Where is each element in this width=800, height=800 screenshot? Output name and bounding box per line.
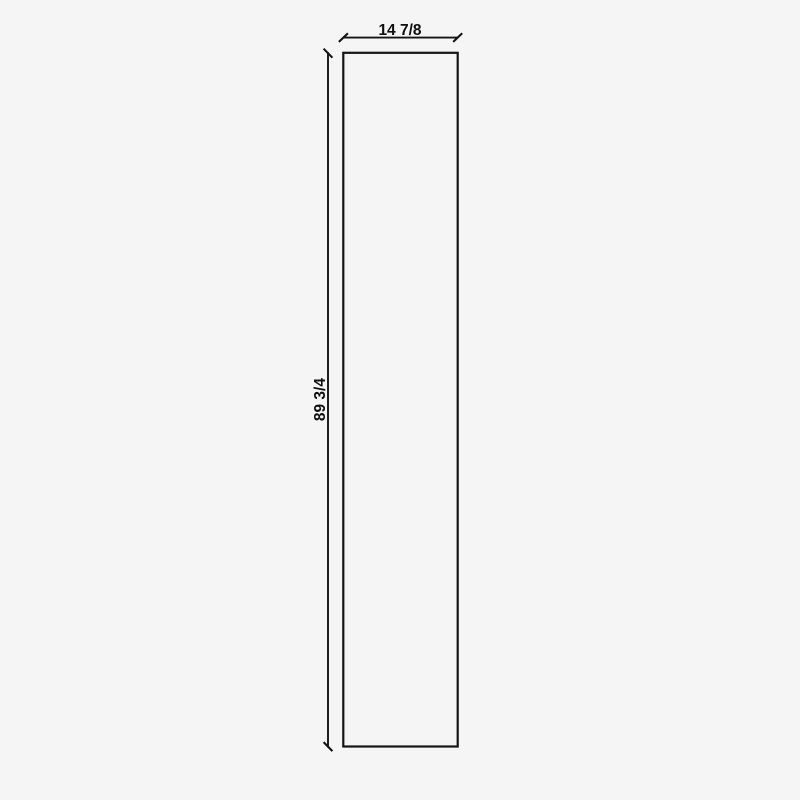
- svg-text:14 7/8: 14 7/8: [378, 22, 421, 39]
- svg-text:89 3/4: 89 3/4: [312, 378, 329, 421]
